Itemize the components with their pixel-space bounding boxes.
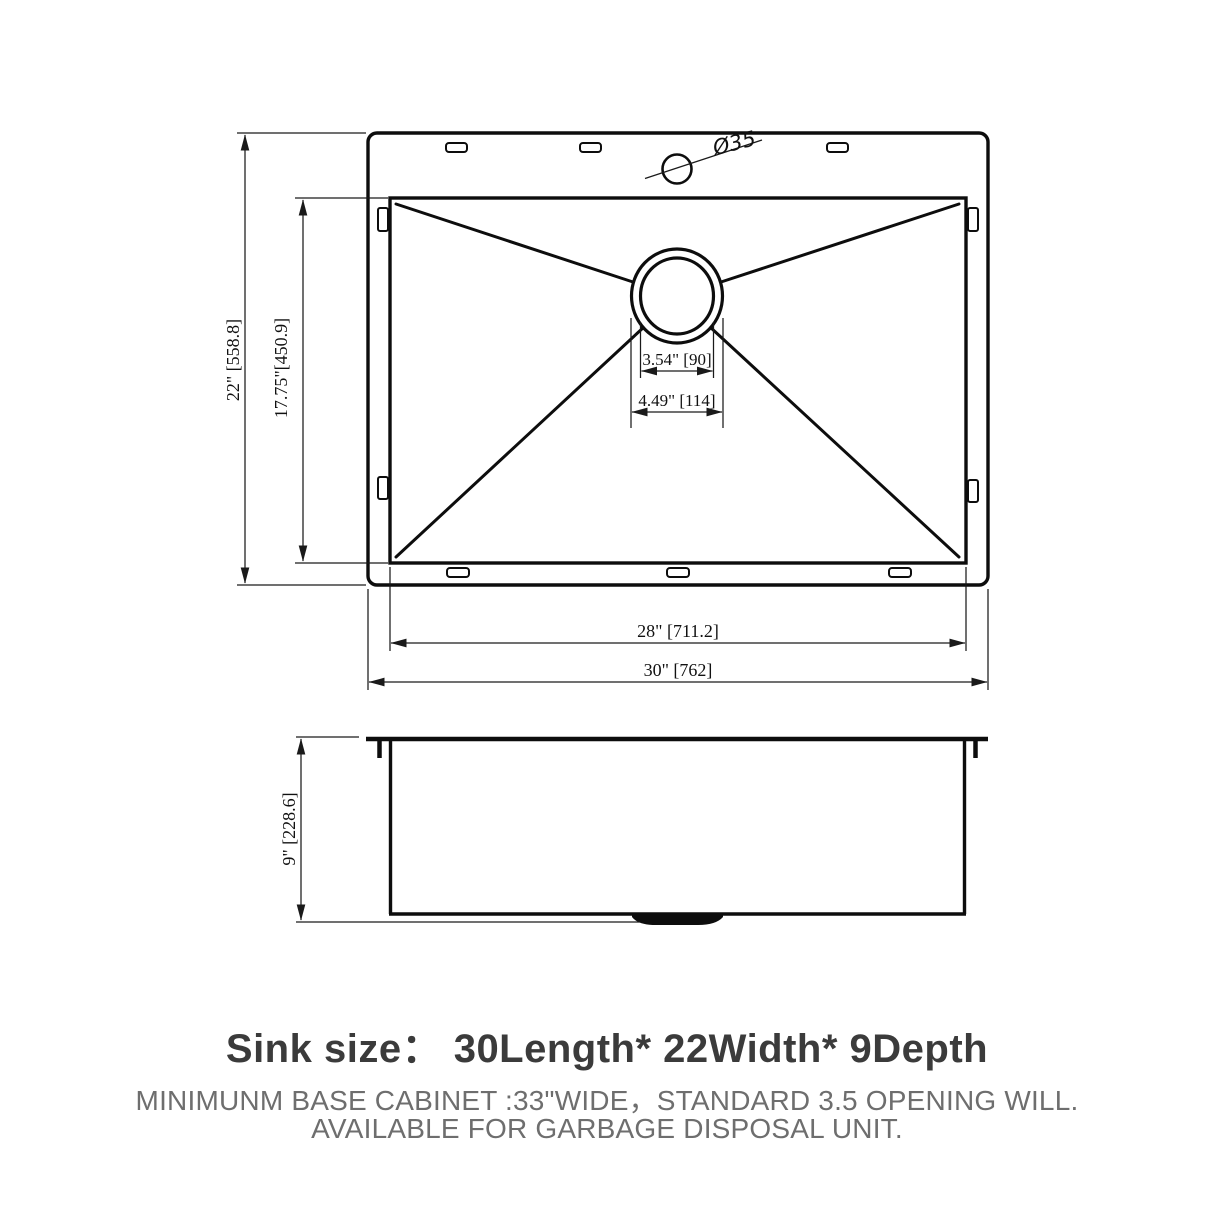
clip-top-2 [580, 143, 601, 152]
drain-outer-circle [632, 249, 723, 343]
clip-left-1 [378, 208, 388, 231]
side-drain-fitting [632, 913, 723, 925]
slope-line-top-right [721, 204, 959, 282]
dim-label-overall-width: 22" [558.8] [223, 319, 243, 401]
clip-top-1 [446, 143, 467, 152]
top-view: Ø35 3.54" [90] 4.49" [114] 22" [558.8] 1… [223, 126, 988, 690]
side-view: 9" [228.6] [279, 737, 988, 925]
dim-label-overall-length: 30" [762] [644, 660, 713, 680]
clip-bottom-3 [889, 568, 911, 577]
slope-line-bottom-left [396, 327, 644, 557]
clip-top-3 [827, 143, 848, 152]
dim-label-basin-width: 17.75"[450.9] [271, 318, 291, 418]
clip-right-2 [968, 480, 978, 502]
faucet-hole [663, 155, 692, 184]
clip-right-1 [968, 208, 978, 231]
sink-size-title: Sink size： 30Length* 22Width* 9Depth [0, 1016, 1214, 1074]
disposal-note-line: AVAILABLE FOR GARBAGE DISPOSAL UNIT. [0, 1113, 1214, 1145]
dim-label-drain-outer: 4.49" [114] [638, 391, 715, 410]
dim-label-depth: 9" [228.6] [279, 792, 299, 865]
clip-left-2 [378, 477, 388, 499]
slope-line-bottom-right [710, 327, 959, 557]
clip-bottom-2 [667, 568, 689, 577]
sink-spec-sheet: Ø35 3.54" [90] 4.49" [114] 22" [558.8] 1… [0, 0, 1214, 1214]
slope-line-top-left [396, 204, 633, 282]
clip-bottom-1 [447, 568, 469, 577]
dim-label-drain-inner: 3.54" [90] [642, 350, 711, 369]
dim-label-basin-length: 28" [711.2] [637, 621, 719, 641]
